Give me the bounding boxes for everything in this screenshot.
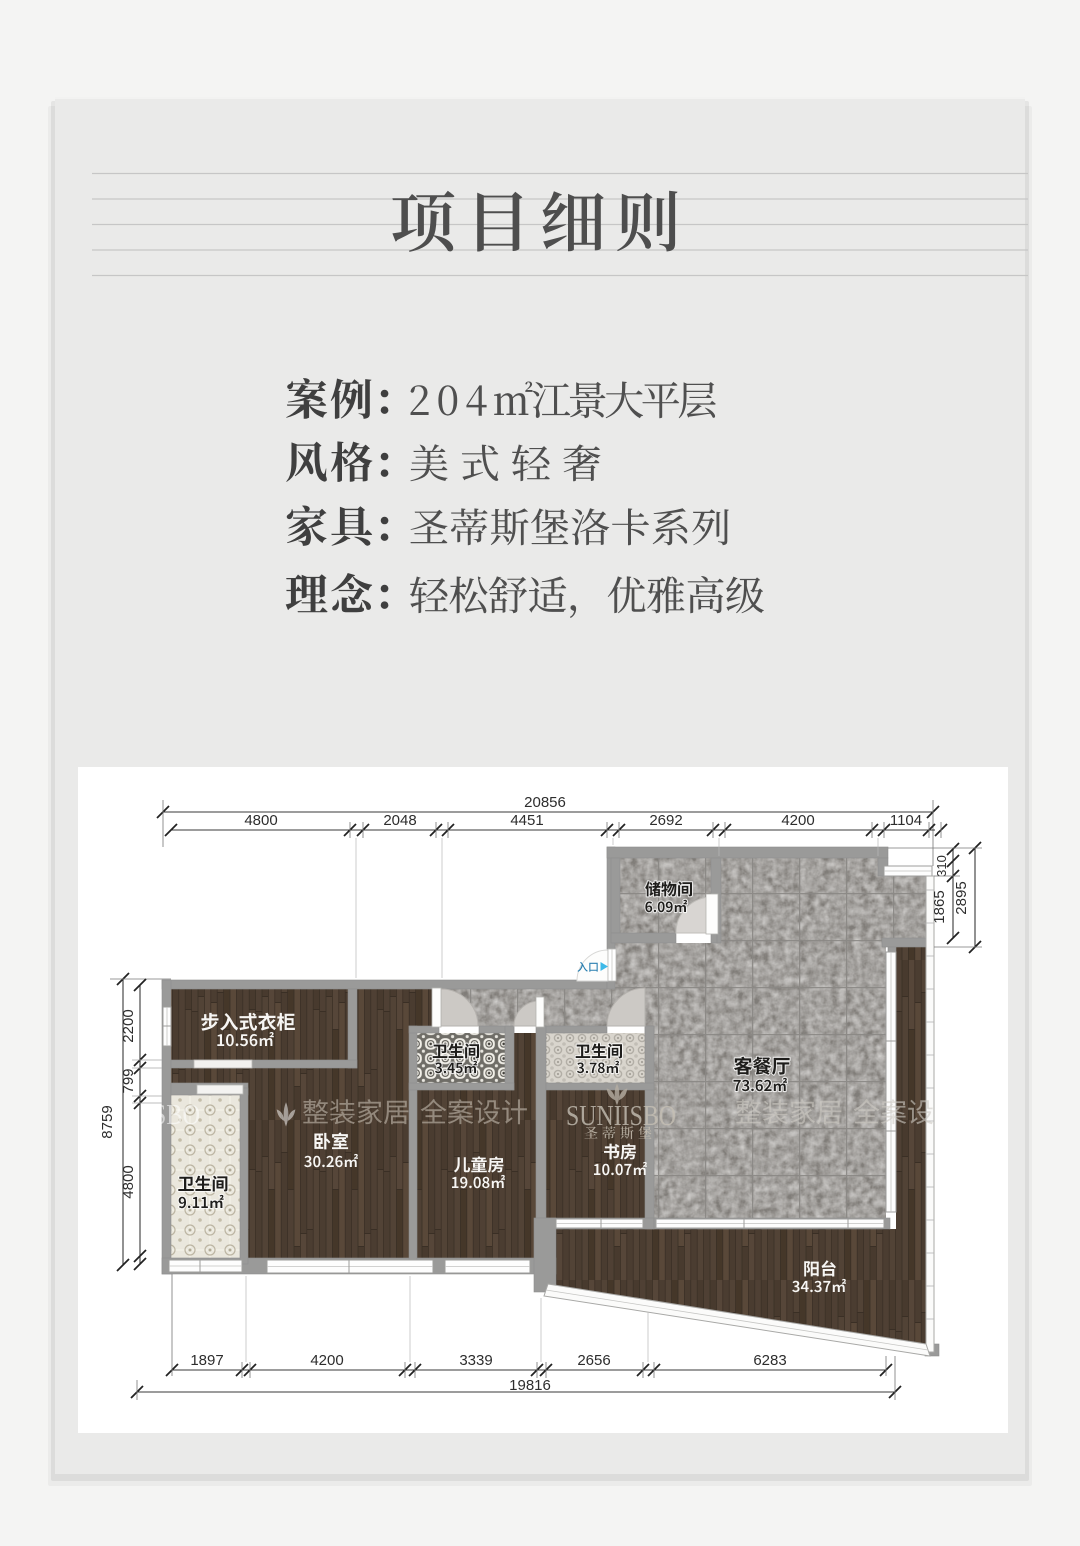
svg-text:3339: 3339 [459,1352,492,1369]
svg-text:2692: 2692 [649,812,682,829]
svg-text:2200: 2200 [120,1009,137,1042]
svg-text:1104: 1104 [890,812,922,829]
svg-text:20856: 20856 [524,794,566,811]
svg-text:19816: 19816 [509,1377,551,1394]
svg-text:SUNIISBO: SUNIISBO [566,1100,676,1132]
svg-text:8759: 8759 [99,1105,116,1138]
svg-text:1897: 1897 [190,1352,223,1369]
svg-text:4451: 4451 [510,812,543,829]
svg-text:310: 310 [934,855,949,877]
svg-text:799: 799 [120,1068,137,1093]
svg-text:4800: 4800 [120,1165,137,1198]
svg-text:4800: 4800 [244,812,277,829]
svg-text:1865: 1865 [931,890,948,923]
svg-text:2048: 2048 [383,812,416,829]
svg-text:2656: 2656 [577,1352,610,1369]
svg-text:4200: 4200 [781,812,814,829]
svg-text:6283: 6283 [753,1352,786,1369]
svg-text:4200: 4200 [310,1352,343,1369]
svg-text:2895: 2895 [953,881,970,914]
